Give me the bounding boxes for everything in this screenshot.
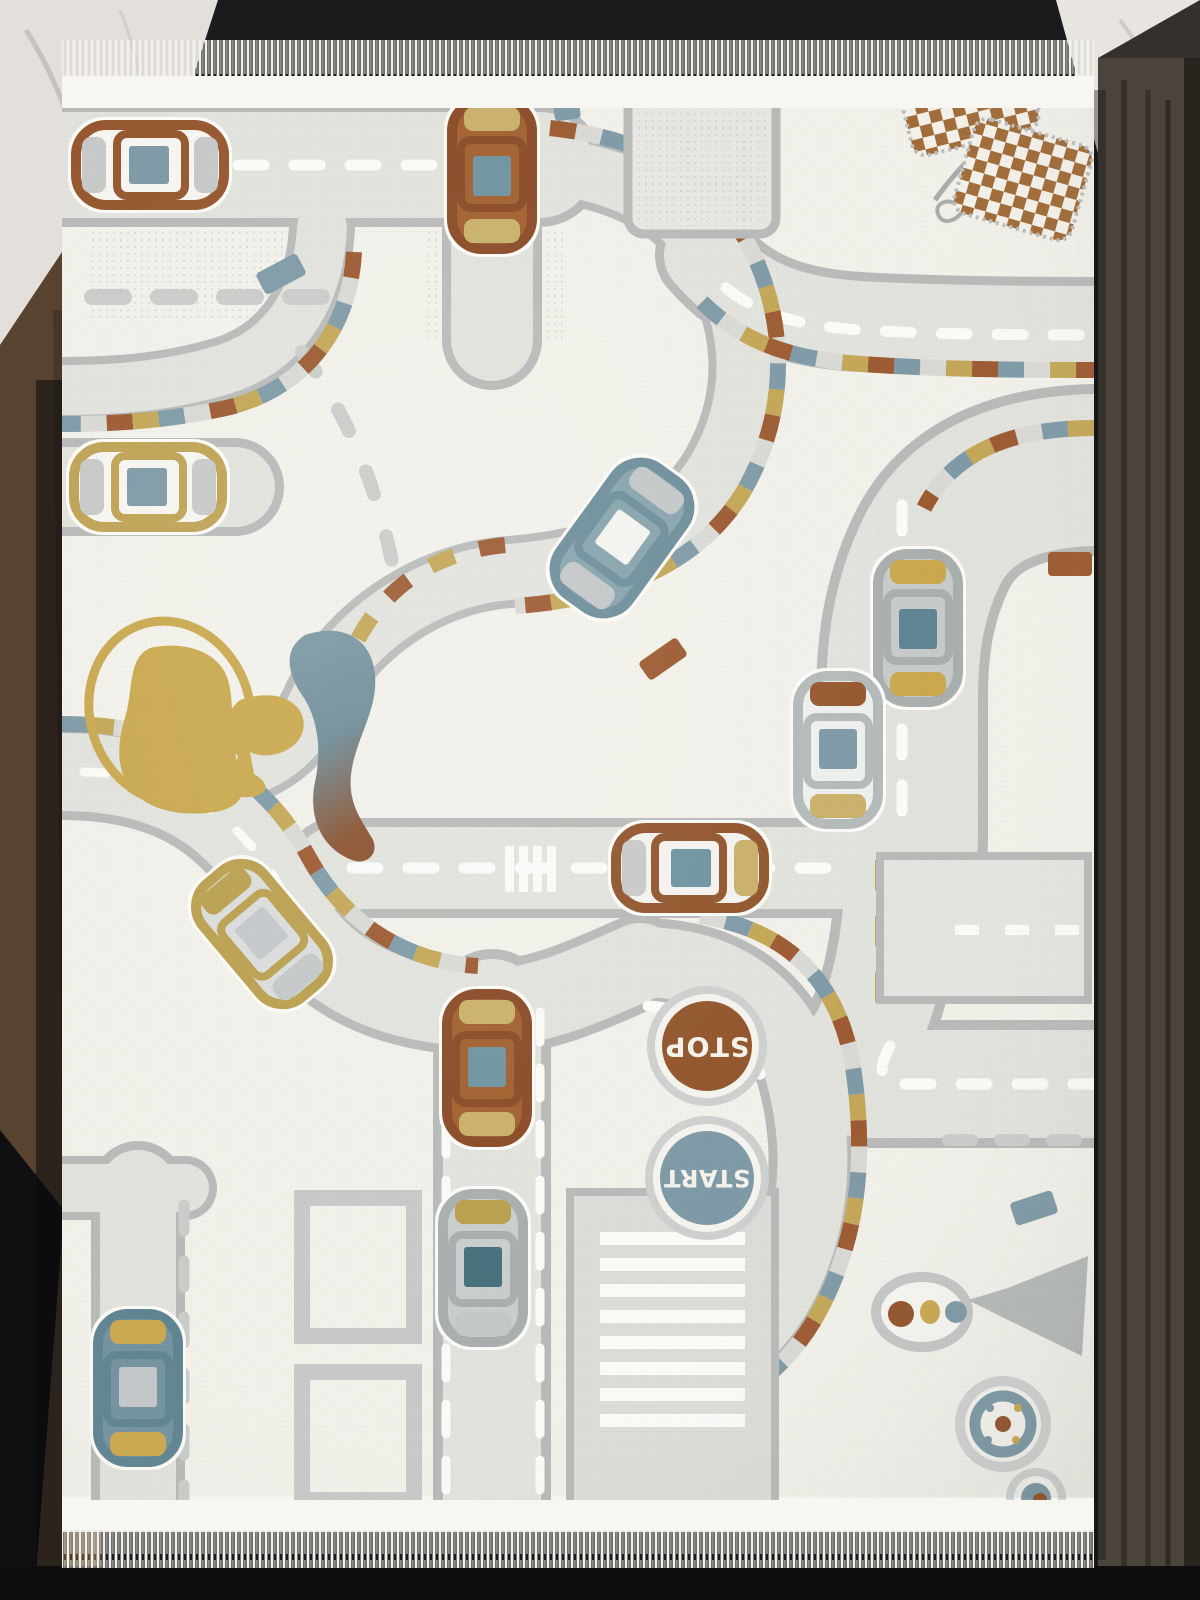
wood-edge (1184, 58, 1200, 1600)
selvage-bottom (62, 1496, 1094, 1532)
shadow-left-of-rug (36, 380, 64, 1570)
selvage-top (62, 76, 1094, 110)
wood-panel-right (1098, 0, 1200, 1600)
floor-shadow (0, 1566, 1200, 1600)
lighting-overlay (62, 108, 1094, 1498)
fringe-bottom (62, 1530, 1094, 1568)
rug: STOP START (62, 39, 1095, 1568)
photo-scene: STOP START (0, 0, 1200, 1600)
play-rug-photo: STOP START (0, 0, 1200, 1600)
fringe-top (62, 40, 1094, 80)
